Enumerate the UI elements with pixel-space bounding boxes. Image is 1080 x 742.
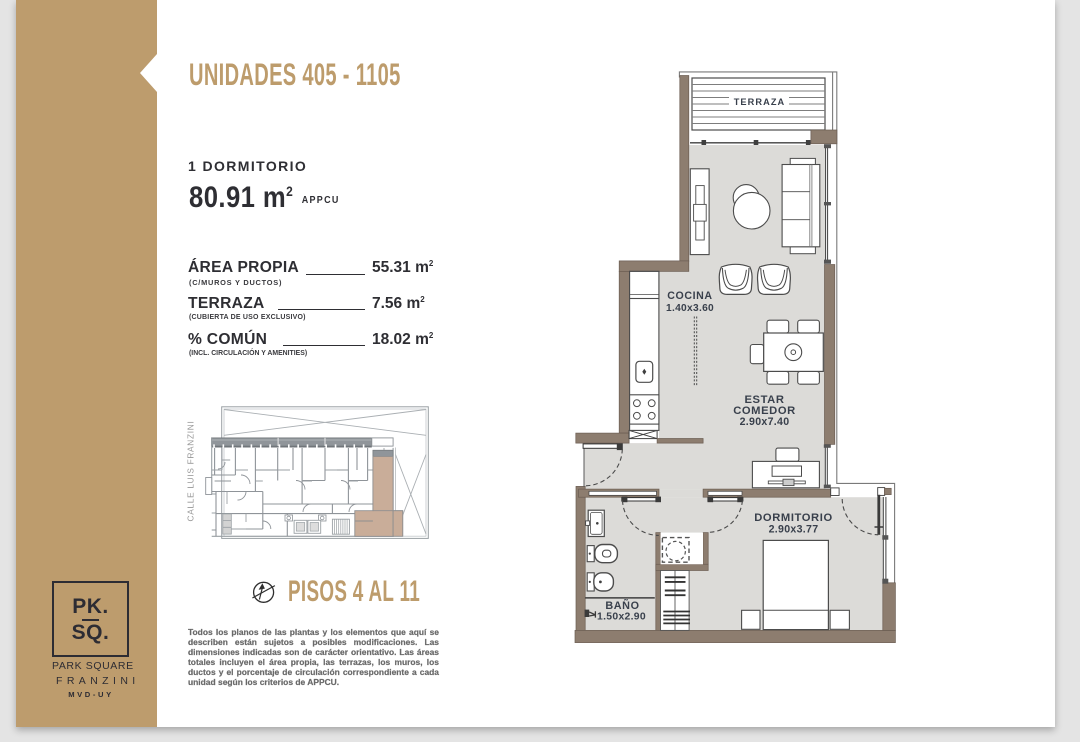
- svg-text:1.40x3.60: 1.40x3.60: [666, 303, 714, 314]
- svg-text:COMEDOR: COMEDOR: [733, 405, 796, 417]
- svg-text:DORMITORIO: DORMITORIO: [754, 512, 833, 524]
- svg-text:2.90x3.77: 2.90x3.77: [769, 524, 819, 536]
- svg-text:2.90x7.40: 2.90x7.40: [740, 416, 790, 428]
- svg-text:TERRAZA: TERRAZA: [734, 97, 786, 107]
- svg-text:COCINA: COCINA: [667, 290, 712, 302]
- svg-text:CALLE LUIS FRANZINI: CALLE LUIS FRANZINI: [186, 421, 196, 522]
- svg-text:ESTAR: ESTAR: [744, 394, 784, 406]
- svg-text:BAÑO: BAÑO: [605, 599, 639, 612]
- svg-text:1.50x2.90: 1.50x2.90: [597, 612, 646, 623]
